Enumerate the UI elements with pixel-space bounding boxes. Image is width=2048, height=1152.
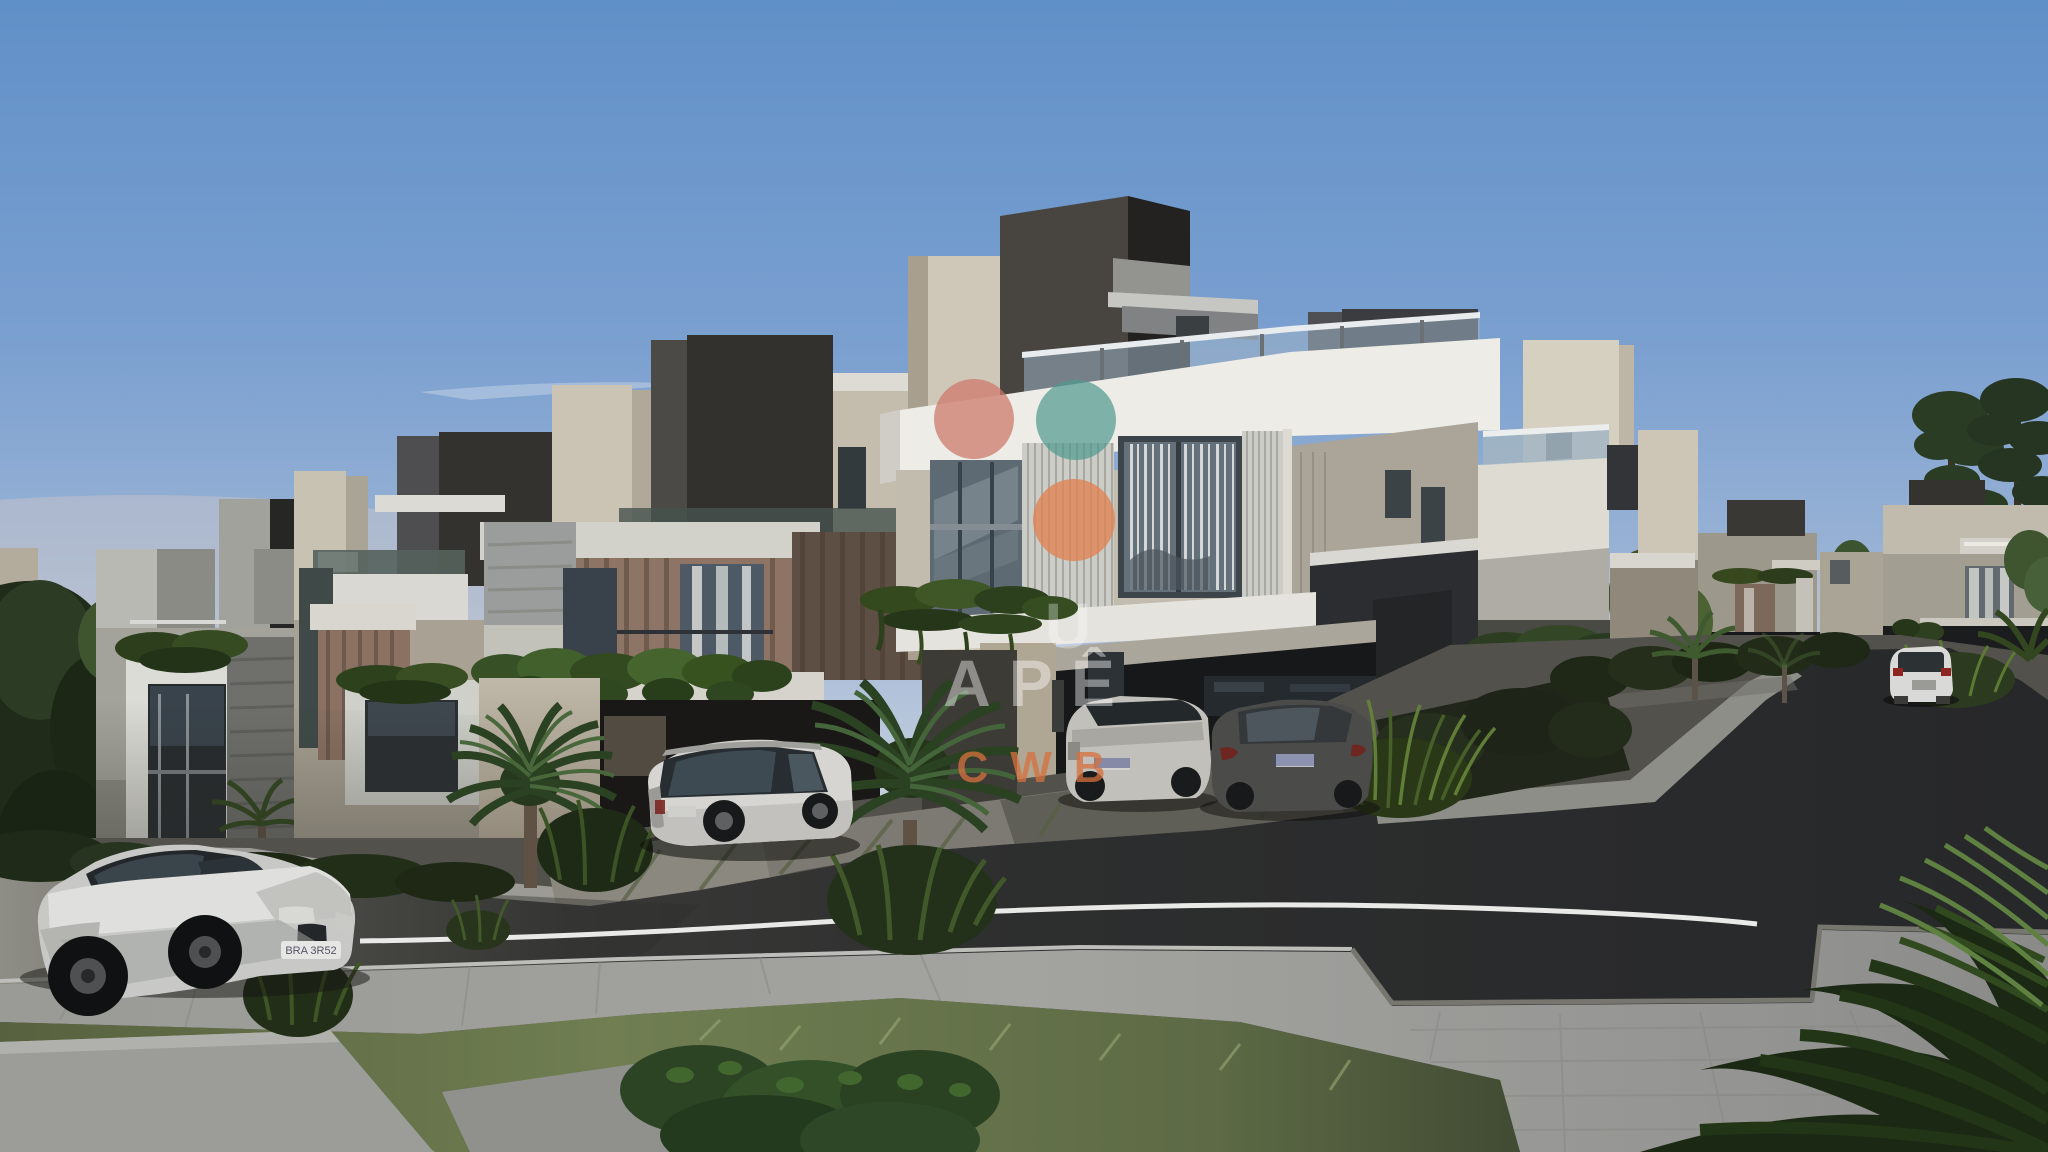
svg-text:CWB: CWB (956, 743, 1127, 792)
svg-text:APÊ: APÊ (943, 646, 1133, 720)
svg-text:BRA 3R52: BRA 3R52 (285, 945, 336, 957)
